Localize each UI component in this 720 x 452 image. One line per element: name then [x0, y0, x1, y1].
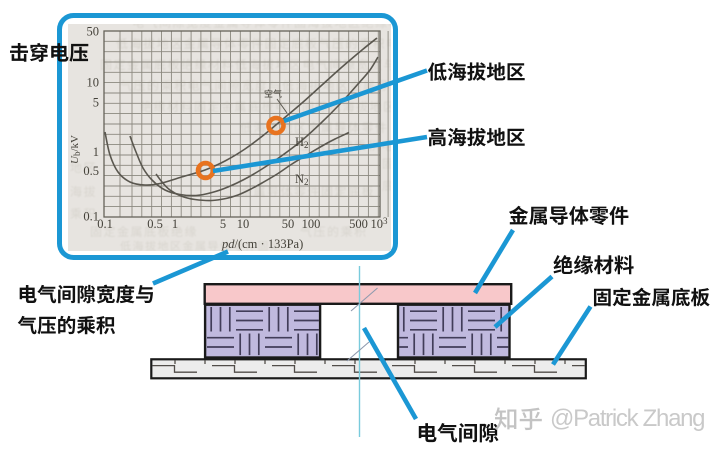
svg-text:100: 100 [302, 217, 321, 231]
svg-text:10: 10 [87, 76, 100, 90]
svg-text:50: 50 [282, 217, 295, 231]
svg-text:0.5: 0.5 [83, 164, 99, 178]
svg-text:50: 50 [87, 25, 100, 39]
svg-text:0.1: 0.1 [97, 217, 113, 231]
svg-text:1: 1 [93, 145, 99, 159]
svg-text:@Patrick Zhang: @Patrick Zhang [550, 405, 704, 432]
svg-text:Ub/kV: Ub/kV [69, 135, 82, 164]
svg-text:500: 500 [349, 217, 368, 231]
svg-text:5: 5 [220, 217, 226, 231]
svg-text:5: 5 [93, 96, 99, 110]
svg-text:0.5: 0.5 [147, 217, 163, 231]
svg-text:10: 10 [237, 217, 250, 231]
svg-text:1: 1 [172, 217, 178, 231]
svg-text:pd/(cm · 133Pa): pd/(cm · 133Pa) [221, 237, 303, 251]
